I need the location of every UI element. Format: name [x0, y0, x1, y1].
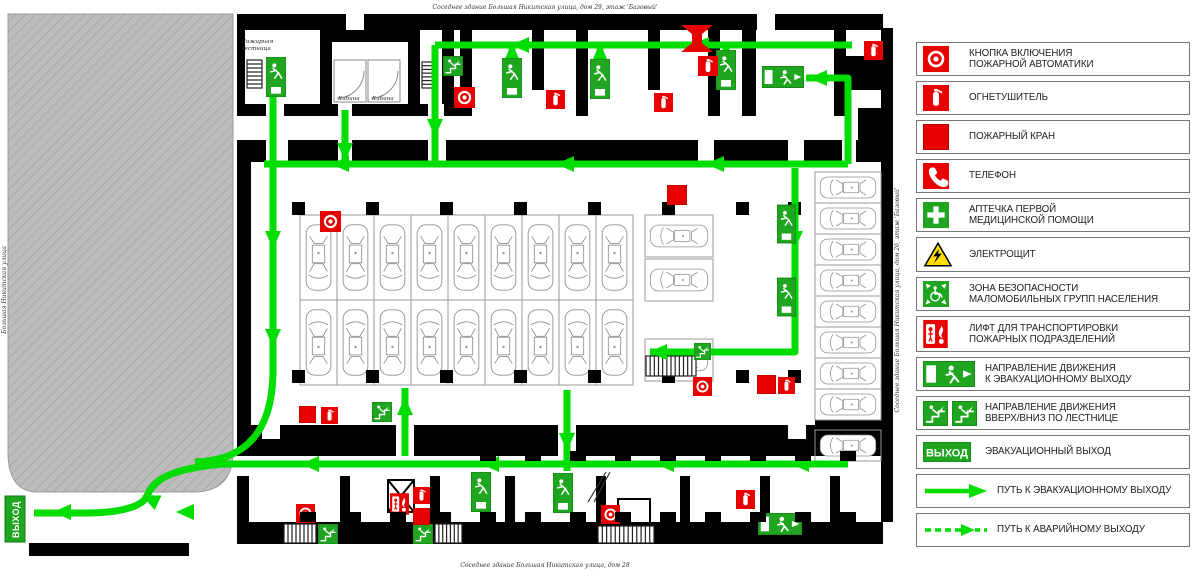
legend-item-label: ЭЛЕКТРОЩИТ [969, 249, 1036, 261]
hydrant-icon [923, 124, 969, 150]
wall-tooth [615, 512, 631, 522]
car-icon [602, 310, 627, 375]
car-icon [650, 269, 707, 291]
route-arrow-icon [53, 504, 71, 520]
extinguisher-icon [654, 93, 673, 112]
pillar [736, 370, 749, 383]
extinguisher-icon [736, 490, 755, 509]
car-icon [650, 225, 707, 247]
legend-item-extinguisher: ОГНЕТУШИТЕЛЬ [916, 81, 1190, 115]
stairs-icon [435, 524, 462, 543]
car-icon [380, 225, 405, 290]
stairs-icon [247, 60, 262, 88]
exit-icon: ВЫХОД [923, 442, 985, 462]
legend-item-label: ПУТЬ К ЭВАКУАЦИОННОМУ ВЫХОДУ [997, 485, 1171, 497]
wall-tooth [750, 451, 766, 461]
extinguisher-icon [321, 407, 338, 424]
title-bottom: Соседнее здание Большая Никитская улица,… [460, 562, 630, 569]
pillar [366, 370, 379, 383]
car-icon [820, 270, 876, 291]
car-icon [454, 310, 479, 375]
route-arrow-icon [397, 397, 413, 415]
pillar [514, 202, 527, 215]
title-left-street: Большая Никитская улица [1, 246, 8, 335]
stair-sign-icon [694, 343, 711, 360]
route-arrow-icon [265, 231, 281, 249]
wall-tooth [390, 512, 406, 522]
car-icon [417, 225, 442, 290]
legend-item-arrow-solid: ПУТЬ К ЭВАКУАЦИОННОМУ ВЫХОДУ [916, 474, 1190, 508]
pillar [588, 370, 601, 383]
wall-tooth [660, 512, 676, 522]
legend-panel: КНОПКА ВКЛЮЧЕНИЯ ПОЖАРНОЙ АВТОМАТИКИОГНЕ… [916, 42, 1190, 547]
exit-sign-label: ВЫХОД [926, 448, 968, 460]
pillar [366, 202, 379, 215]
first-aid-icon [923, 202, 969, 228]
legend-item-stairs-two: НАПРАВЛЕНИЕ ДВИЖЕНИЯ ВВЕРХ/ВНИЗ ПО ЛЕСТН… [916, 396, 1190, 430]
evacuation-plan-page: ВЫХОД Соседнее здание Большая Никитская … [0, 0, 1200, 577]
extinguisher-icon [546, 90, 565, 109]
pillar [514, 370, 527, 383]
legend-item-safety-zone: ЗОНА БЕЗОПАСНОСТИ МАЛОМОБИЛЬНЫХ ГРУПП НА… [916, 277, 1190, 311]
evac-v-icon [716, 50, 736, 90]
hydrant-icon [413, 508, 430, 525]
extinguisher-icon [923, 85, 969, 111]
stair-sign-icon [318, 524, 338, 544]
hydrant-icon [757, 375, 776, 394]
legend-item-hydrant: ПОЖАРНЫЙ КРАН [916, 120, 1190, 154]
route-arrow-icon [176, 504, 194, 520]
car-icon [417, 310, 442, 375]
legend-item-label: НАПРАВЛЕНИЕ ДВИЖЕНИЯ К ЭВАКУАЦИОННОМУ ВЫ… [985, 363, 1131, 386]
legend-item-label: ЭВАКУАЦИОННЫЙ ВЫХОД [985, 446, 1111, 458]
route-arrow-icon [265, 329, 281, 347]
fire-lift-icon [390, 493, 409, 515]
wall-tooth [525, 451, 541, 461]
stair-sign-icon [413, 524, 433, 544]
evac-v-icon [553, 473, 573, 513]
stairs-two-icon [923, 401, 985, 426]
fire-stairs-label: Пожарнаялестница [240, 39, 274, 52]
route-arrow-icon [301, 456, 319, 472]
car-icon [528, 225, 553, 290]
car-icon [491, 310, 516, 375]
floor-plan-svg: ВЫХОД Соседнее здание Большая Никитская … [0, 0, 910, 577]
legend-item-fire-lift: ЛИФТ ДЛЯ ТРАНСПОРТИРОВКИ ПОЖАРНЫХ ПОДРАЗ… [916, 316, 1190, 352]
cabin-label: Кабина [371, 95, 394, 102]
wall-tooth [300, 512, 316, 522]
wall-tooth [750, 512, 766, 522]
car-icon [454, 225, 479, 290]
wall-tooth [435, 512, 451, 522]
title-top: Соседнее здание Большая Никитская улица,… [433, 4, 658, 11]
legend-item-fire-button: КНОПКА ВКЛЮЧЕНИЯ ПОЖАРНОЙ АВТОМАТИКИ [916, 42, 1190, 76]
car-icon [820, 394, 876, 415]
floor-plan: ВЫХОД Соседнее здание Большая Никитская … [0, 0, 910, 577]
adjacent-building [8, 14, 233, 492]
car-icon [491, 225, 516, 290]
pillar [736, 202, 749, 215]
wall-tooth [570, 512, 586, 522]
phone-icon [923, 163, 969, 189]
legend-item-first-aid: АПТЕЧКА ПЕРВОЙ МЕДИЦИНСКОЙ ПОМОЩИ [916, 198, 1190, 232]
arrow-solid-icon [923, 483, 997, 499]
pillar [440, 202, 453, 215]
wall-tooth [480, 451, 496, 461]
fire-button-icon [320, 211, 341, 232]
legend-item-evac-h: НАПРАВЛЕНИЕ ДВИЖЕНИЯ К ЭВАКУАЦИОННОМУ ВЫ… [916, 357, 1190, 391]
legend-item-arrow-dashed: ПУТЬ К АВАРИЙНОМУ ВЫХОДУ [916, 513, 1190, 547]
cabin-label: Кабина [337, 95, 360, 102]
car-icon [820, 301, 876, 322]
hydrant-icon [299, 406, 316, 423]
legend-item-phone: ТЕЛЕФОН [916, 159, 1190, 193]
car-icon [306, 225, 331, 290]
evac-v-icon [590, 59, 610, 99]
stairs-icon [284, 524, 316, 543]
route-arrow-icon [809, 70, 827, 86]
fire-button-icon [454, 87, 475, 108]
legend-item-label: ПУТЬ К АВАРИЙНОМУ ВЫХОДУ [997, 524, 1145, 536]
extinguisher-icon [698, 56, 718, 76]
evac-h-icon [923, 361, 985, 387]
wall-tooth [480, 512, 496, 522]
legend-item-electro: ЭЛЕКТРОЩИТ [916, 237, 1190, 272]
exit-sign: ВЫХОД [5, 496, 25, 542]
wall-tooth [570, 451, 586, 461]
fire-button-icon [693, 377, 712, 396]
stair-sign-icon [372, 402, 392, 422]
pillar [440, 370, 453, 383]
legend-item-label: ЗОНА БЕЗОПАСНОСТИ МАЛОМОБИЛЬНЫХ ГРУПП НА… [969, 283, 1158, 306]
wall-tooth [795, 512, 811, 522]
car-icon [565, 225, 590, 290]
car-icon [565, 310, 590, 375]
safety-zone-icon [923, 281, 969, 307]
legend-item-label: ОГНЕТУШИТЕЛЬ [969, 92, 1048, 104]
car-icon [820, 239, 876, 260]
evac-v-icon [777, 278, 796, 316]
car-icon [602, 225, 627, 290]
car-icon [820, 363, 876, 384]
legend-item-label: КНОПКА ВКЛЮЧЕНИЯ ПОЖАРНОЙ АВТОМАТИКИ [969, 48, 1093, 71]
wall-tooth [615, 451, 631, 461]
exit-sign-label: ВЫХОД [11, 501, 21, 538]
evac-v-icon [471, 472, 491, 512]
pillar [588, 202, 601, 215]
stair-sign-icon [443, 56, 463, 76]
evac-v-icon [502, 58, 522, 98]
extinguisher-icon [864, 41, 883, 60]
wall-tooth [840, 512, 856, 522]
car-icon [820, 177, 876, 198]
wall-tooth [840, 451, 856, 461]
wall-tooth [705, 512, 721, 522]
wall-tooth [795, 451, 811, 461]
fire-lift-icon [923, 320, 969, 348]
stairs-icon [598, 526, 654, 543]
car-icon [343, 225, 368, 290]
car-icon [343, 310, 368, 375]
hydrant-icon [667, 185, 687, 205]
car-icon [306, 310, 331, 375]
car-icon [820, 208, 876, 229]
car-icon [820, 332, 876, 353]
pillar [292, 370, 305, 383]
stairs-icon [646, 356, 696, 376]
route-arrow-icon [427, 119, 443, 137]
car-icon [528, 310, 553, 375]
wall-tooth [660, 451, 676, 461]
extinguisher-icon [413, 487, 430, 504]
legend-item-label: ПОЖАРНЫЙ КРАН [969, 131, 1055, 143]
legend-item-exit: ВЫХОДЭВАКУАЦИОННЫЙ ВЫХОД [916, 435, 1190, 469]
pillar [292, 202, 305, 215]
wall-tooth [345, 512, 361, 522]
legend-item-label: ТЕЛЕФОН [969, 170, 1016, 182]
wall-tooth [525, 512, 541, 522]
arrow-dashed-icon [923, 522, 997, 538]
fire-button-icon [923, 46, 969, 72]
wall-tooth [705, 451, 721, 461]
electro-icon [923, 241, 969, 268]
legend-item-label: НАПРАВЛЕНИЕ ДВИЖЕНИЯ ВВЕРХ/ВНИЗ ПО ЛЕСТН… [985, 402, 1118, 425]
evac-h-icon [762, 67, 804, 88]
evac-v-icon [266, 57, 286, 97]
legend-item-label: АПТЕЧКА ПЕРВОЙ МЕДИЦИНСКОЙ ПОМОЩИ [969, 204, 1094, 227]
evac-v-icon [777, 205, 796, 243]
title-right-street: Соседнее здание Большая Никитская улица,… [894, 187, 901, 412]
extinguisher-icon [778, 377, 795, 394]
legend-item-label: ЛИФТ ДЛЯ ТРАНСПОРТИРОВКИ ПОЖАРНЫХ ПОДРАЗ… [969, 323, 1118, 346]
car-icon [380, 310, 405, 375]
